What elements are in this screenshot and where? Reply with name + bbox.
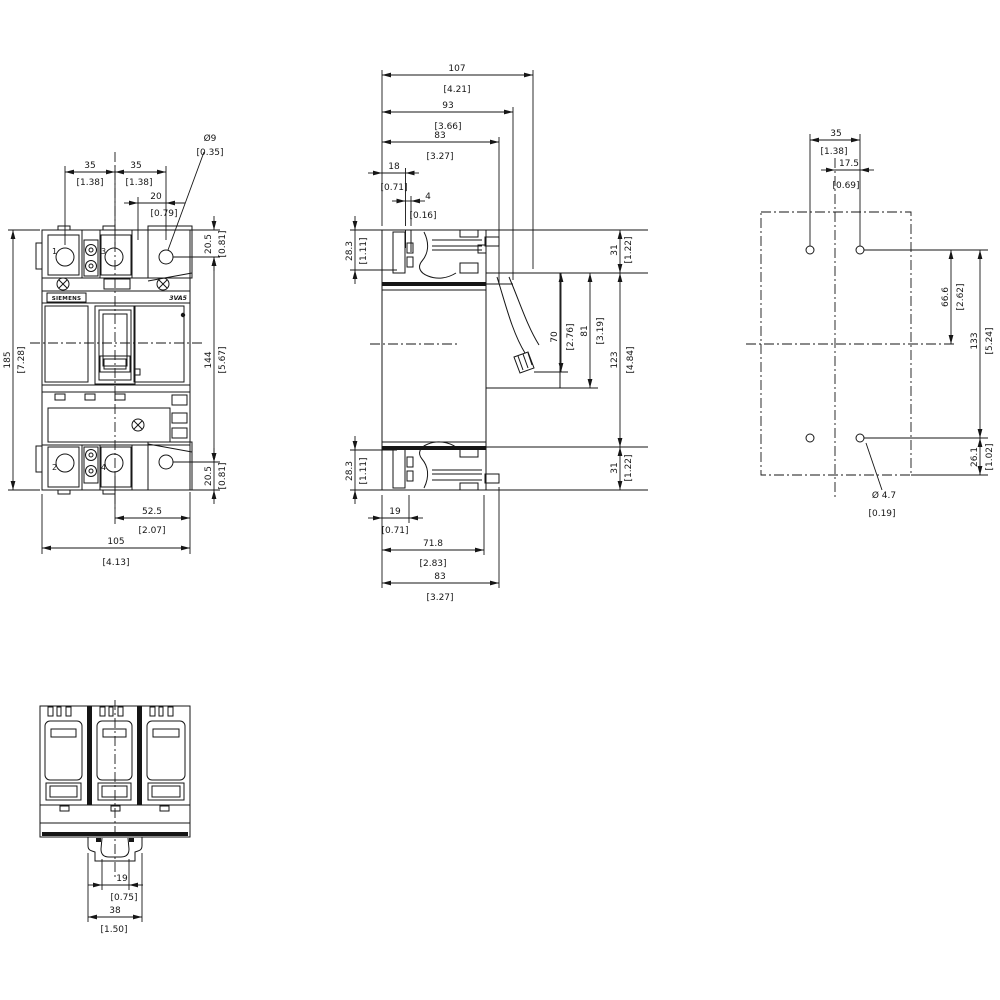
dim-step-4: 4 [0.16] xyxy=(392,192,437,226)
terminal-3-hole xyxy=(105,248,123,266)
technical-drawing-page: 1 3 SIEMENS 3VA5 xyxy=(0,0,1000,1000)
dim-text: 35 xyxy=(84,161,95,171)
bottom-view: 19 [0.75] 38 [1.50] xyxy=(40,700,190,935)
dim-drill-dia: Ø 4.7 [0.19] xyxy=(866,443,896,519)
side-body-outline xyxy=(370,230,513,490)
front-handle-area xyxy=(30,152,204,512)
mounting-lug-top xyxy=(148,226,192,278)
dim-handle-70: 70 [2.76] xyxy=(550,273,576,372)
dim-text: 123 xyxy=(610,351,620,368)
dimensional-drawing: 1 3 SIEMENS 3VA5 xyxy=(0,0,1000,1000)
dim-text: 20 xyxy=(150,192,162,202)
dim-text: 144 xyxy=(204,351,214,368)
dim-text: 38 xyxy=(109,906,121,916)
side-view: 107 [4.21] 93 [3.66] 83 [3.27] 18 [0.71] xyxy=(345,64,648,603)
dim-text: [3.19] xyxy=(596,317,606,344)
dim-text: [3.27] xyxy=(426,152,453,162)
dim-text: [2.07] xyxy=(138,526,165,536)
dim-text: 71.8 xyxy=(423,539,443,549)
dim-text: [0.16] xyxy=(409,211,436,221)
dim-text: 185 xyxy=(3,351,13,368)
dim-text: 66.6 xyxy=(941,287,951,307)
mounting-hole-top xyxy=(159,250,173,264)
dim-center-66-6: 66.6 [2.62] xyxy=(941,250,966,344)
drill-hole-bottom-right xyxy=(856,434,864,442)
dim-text: [2.76] xyxy=(566,323,576,350)
dim-depth-top: 20.5 [0.81] xyxy=(173,216,228,271)
dim-text: Ø9 xyxy=(204,133,217,144)
dim-text: 93 xyxy=(442,101,453,111)
front-top-terminals: 1 3 xyxy=(48,226,192,281)
dim-text: [1.38] xyxy=(76,178,103,188)
dim-hole-dia: Ø9 [0.35] xyxy=(168,133,224,250)
front-view: 1 3 SIEMENS 3VA5 xyxy=(3,133,228,568)
dim-width: 105 [4.13] xyxy=(42,494,190,568)
molding-profile-top xyxy=(420,232,456,278)
dim-span-123: 123 [4.84] xyxy=(610,273,636,447)
dim-text: [4.84] xyxy=(626,346,636,373)
dim-text: 31 xyxy=(610,462,620,473)
model-text: 3VA5 xyxy=(169,295,187,302)
dim-text: [0.81] xyxy=(218,230,228,257)
brand-text: SIEMENS xyxy=(52,296,81,302)
mounting-hole-bottom xyxy=(159,455,173,469)
dim-text: Ø 4.7 xyxy=(872,490,896,501)
dim-text: [5.67] xyxy=(218,346,228,373)
dim-text: 35 xyxy=(130,161,141,171)
dim-text: [0.75] xyxy=(110,893,137,903)
dim-text: [0.69] xyxy=(832,181,859,191)
leader-line xyxy=(866,443,882,490)
dim-hole-offset: 20 [0.79] xyxy=(124,192,185,240)
dim-hole-span: 144 [5.67] xyxy=(173,257,228,462)
dim-text: [2.83] xyxy=(419,559,446,569)
handle-arc-front xyxy=(497,277,525,353)
dim-text: 26.1 xyxy=(970,447,980,467)
dim-half-17-5: 17.5 [0.69] xyxy=(821,159,874,191)
terminal-4-label: 4 xyxy=(101,463,106,472)
dim-edge-31-top: 31 [1.22] xyxy=(610,230,634,273)
dim-text: [5.24] xyxy=(985,327,995,354)
drill-extensions xyxy=(864,250,988,475)
dim-text: [1.11] xyxy=(359,457,369,484)
dim-text: [1.22] xyxy=(624,236,634,263)
front-bottom-terminals: 2 4 xyxy=(48,442,192,490)
dim-height: 185 [7.28] xyxy=(3,230,40,490)
dim-text: 19 xyxy=(389,507,401,517)
dim-text: [0.79] xyxy=(150,209,177,219)
dim-text: [1.38] xyxy=(820,147,847,157)
side-right-extensions xyxy=(486,230,648,490)
dim-text: [1.11] xyxy=(359,237,369,264)
dim-span-133: 133 [5.24] xyxy=(970,250,995,438)
dim-text: 35 xyxy=(830,129,841,139)
dim-text: [0.81] xyxy=(218,462,228,489)
handle-arc-back xyxy=(509,277,539,345)
dim-rail-19: 19 [0.71] xyxy=(368,495,423,588)
dim-text: [4.13] xyxy=(102,558,129,568)
dim-text: 83 xyxy=(434,131,445,141)
leader-line xyxy=(168,152,204,250)
dim-bottom-rail-19: 19 [0.75] xyxy=(88,859,143,903)
dim-text: 19 xyxy=(116,874,128,884)
dim-text: [1.38] xyxy=(125,178,152,188)
dim-offset-bottom: 52.5 [2.07] xyxy=(115,473,190,536)
drill-hole-top-left xyxy=(806,246,814,254)
dim-text: 81 xyxy=(580,325,590,336)
dim-text: [0.19] xyxy=(868,509,895,519)
terminal-4-hole xyxy=(105,454,123,472)
dim-edge-26-1: 26.1 [1.02] xyxy=(970,438,995,475)
dim-text: 133 xyxy=(970,332,980,349)
terminal-1-label: 1 xyxy=(52,247,57,256)
terminal-2-hole xyxy=(56,454,74,472)
dim-text: 28.3 xyxy=(345,461,355,481)
dim-term-28-top: 28.3 [1.11] xyxy=(345,216,397,284)
dim-pitch-left: 35 [1.38] xyxy=(65,161,115,245)
dim-text: [4.21] xyxy=(443,85,470,95)
bottom-pole-3 xyxy=(147,707,185,800)
dim-depth-bottom: 20.5 [0.81] xyxy=(192,448,228,504)
terminal-2-label: 2 xyxy=(52,463,57,472)
dim-text: [0.35] xyxy=(196,148,223,158)
dim-text: 4 xyxy=(425,192,431,202)
front-accessory-band xyxy=(48,394,187,442)
detail-marker xyxy=(181,313,185,317)
dim-text: [1.02] xyxy=(985,443,995,470)
terminal-3-label: 3 xyxy=(101,247,106,256)
terminal-1-hole xyxy=(56,248,74,266)
bottom-pole-2 xyxy=(97,707,132,800)
drill-hole-top-right xyxy=(856,246,864,254)
dim-edge-31-bot: 31 [1.22] xyxy=(610,447,634,490)
dim-text: 31 xyxy=(610,244,620,255)
dim-text: 107 xyxy=(448,64,465,74)
front-label-band: SIEMENS 3VA5 xyxy=(47,278,187,302)
drill-hole-bottom-left xyxy=(806,434,814,442)
dim-depth-83-top: 83 [3.27] xyxy=(382,131,499,283)
dim-text: 17.5 xyxy=(839,159,859,169)
dim-text: [2.62] xyxy=(956,283,966,310)
dim-handle-81: 81 [3.19] xyxy=(580,273,606,388)
dim-text: 105 xyxy=(107,537,124,547)
dim-text: [1.50] xyxy=(100,925,127,935)
dim-text: 28.3 xyxy=(345,241,355,261)
dim-text: 20.5 xyxy=(204,466,214,486)
mounting-lug-bottom xyxy=(148,442,192,490)
side-handle-box xyxy=(486,273,560,388)
drill-pattern-view: 35 [1.38] 17.5 [0.69] 66.6 [2.62] 133 [5… xyxy=(746,129,995,519)
dim-text: [0.71] xyxy=(381,526,408,536)
dim-text: 20.5 xyxy=(204,234,214,254)
dim-text: [0.71] xyxy=(380,183,407,193)
dim-text: 18 xyxy=(388,162,400,172)
dim-text: [3.27] xyxy=(426,593,453,603)
breaker-outline-phantom xyxy=(761,212,911,475)
dim-text: [1.22] xyxy=(624,454,634,481)
dim-text: 83 xyxy=(434,572,445,582)
bottom-pole-1 xyxy=(45,707,82,800)
dim-text: 70 xyxy=(550,331,560,343)
dim-text: 52.5 xyxy=(142,507,162,517)
dim-text: [7.28] xyxy=(17,346,27,373)
